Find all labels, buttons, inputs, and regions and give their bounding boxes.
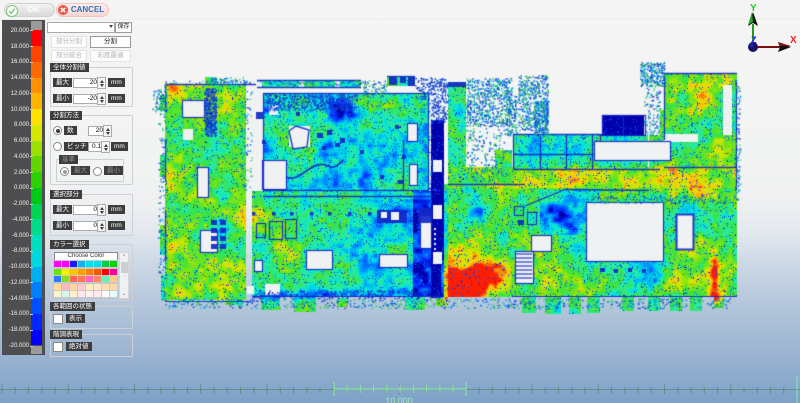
svg-text:Z: Z [751, 35, 757, 45]
svg-text:10,000: 10,000 [385, 396, 413, 403]
svg-text:Y: Y [750, 3, 757, 14]
svg-text:X: X [790, 35, 797, 46]
